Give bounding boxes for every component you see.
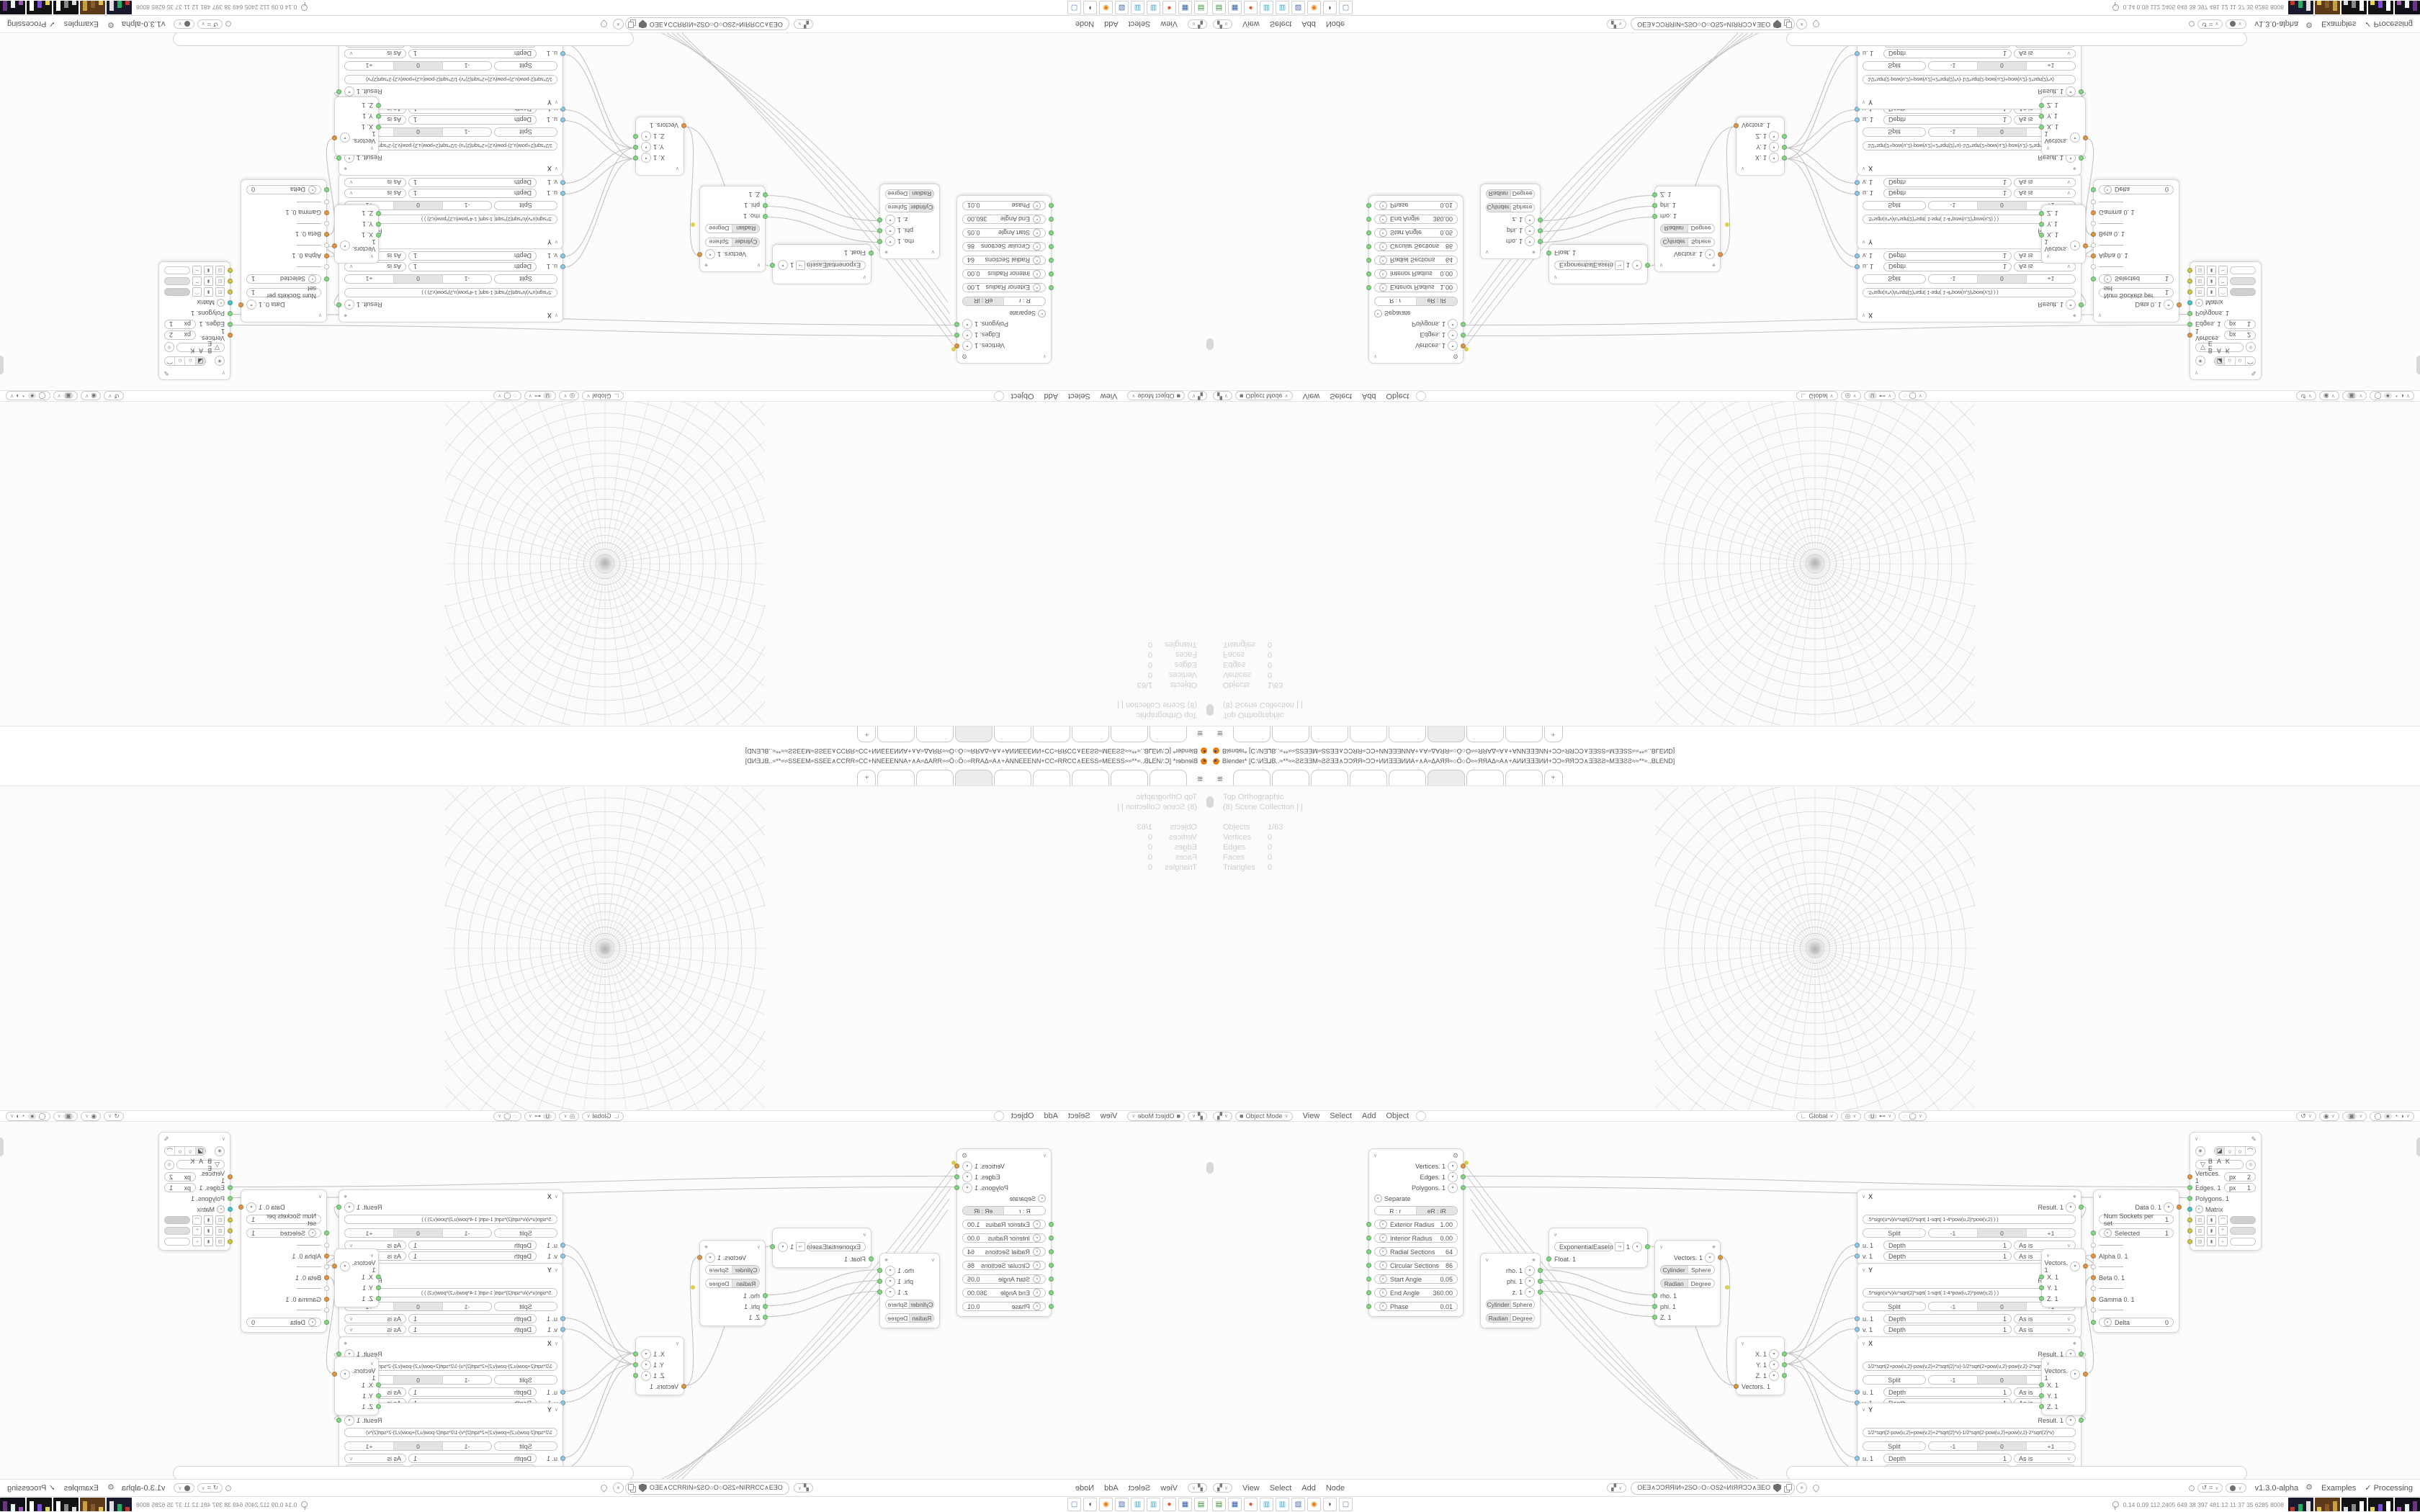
copy-datablock-icon[interactable]	[1784, 1484, 1791, 1492]
viewport-sidebar-toggle[interactable]	[1210, 796, 1214, 808]
socket-empty[interactable]	[2091, 1264, 2096, 1269]
segment-r-r[interactable]: R : r	[1004, 297, 1046, 305]
segment-r-r[interactable]: R : r	[1004, 1207, 1046, 1215]
node-cyl2cart[interactable]: ∨⌖Vectors. 1▾CylinderSphereRadianDegreer…	[1654, 186, 1721, 272]
socket-blue[interactable]	[560, 1390, 565, 1395]
socket-orange[interactable]	[324, 210, 329, 215]
swatch-icon-1[interactable]: ▮	[2207, 276, 2216, 286]
socket-green[interactable]	[1645, 263, 1650, 268]
menu-hamburger-icon[interactable]: ≡	[1197, 729, 1203, 737]
px-field[interactable]: px2	[2224, 330, 2256, 340]
node-editor-menu-select[interactable]: Select	[1270, 20, 1292, 29]
range-0[interactable]: -1	[442, 1229, 491, 1237]
node-editor-menu-select[interactable]: Select	[1270, 1484, 1292, 1493]
segment-radian[interactable]: Radian	[1487, 190, 1511, 198]
copy-datablock-icon[interactable]	[1784, 20, 1791, 28]
node-editor-menu-node[interactable]: Node	[1075, 20, 1094, 29]
socket-yellow[interactable]	[2187, 279, 2192, 284]
node-editor-scrollbar[interactable]	[0, 1138, 4, 1156]
value-field-phase[interactable]: Phase0.01	[962, 201, 1046, 210]
socket-green[interactable]	[877, 228, 882, 233]
overlays-dropdown[interactable]: ◉∨	[2319, 392, 2339, 401]
split-range-toggle[interactable]: -10+1	[1928, 274, 2076, 284]
proportional-editing-toggle[interactable]: ◌◯∨	[493, 392, 521, 401]
taskbar-green-document-app[interactable]: ▤	[1194, 1498, 1208, 1511]
segment-er-ir[interactable]: eR : iR	[963, 1207, 1004, 1215]
status-dot-dropdown[interactable]: ∨	[174, 19, 194, 29]
segment-r-r[interactable]: R : r	[1375, 1207, 1417, 1215]
node-editor-scrollbar[interactable]	[2416, 1138, 2420, 1156]
node-cyl2cart[interactable]: ∨⌖Vectors. 1▾CylinderSphereRadianDegreer…	[1654, 1240, 1721, 1326]
gear-icon[interactable]: ⚙	[107, 21, 115, 27]
preview-eye-button[interactable]: ◉	[2195, 356, 2205, 366]
value-field-exterior-radius[interactable]: Exterior Radius1.00	[1374, 283, 1458, 292]
swatch-icon-1[interactable]: ▮	[204, 276, 213, 286]
value-field-delta[interactable]: Delta0	[246, 185, 321, 194]
status-circle-icon[interactable]	[225, 22, 231, 27]
socket-orange[interactable]	[2177, 302, 2182, 307]
socket-empty[interactable]	[324, 1308, 329, 1313]
socket-collapse-button[interactable]: ▾	[2070, 241, 2080, 251]
proportional-editing-toggle[interactable]: ◌◯∨	[1899, 1112, 1927, 1121]
shading-mode-2[interactable]: ◔	[2394, 1113, 2398, 1120]
editor-type-selector[interactable]: ▞∨	[1188, 392, 1207, 401]
socket-teal[interactable]	[228, 300, 233, 305]
node-comb2[interactable]: ∨Vectors. 1▾X. 1Y. 1Z. 1	[334, 1356, 379, 1416]
socket-green[interactable]	[1782, 134, 1787, 139]
segment-radian[interactable]: Radian	[1661, 225, 1688, 233]
bake-button[interactable]: ▽B A K E	[176, 1160, 225, 1169]
socket-green[interactable]	[1461, 322, 1466, 327]
depth-field[interactable]: Depth1	[1883, 251, 2012, 261]
socket-collapse-button[interactable]: ▾	[246, 300, 256, 310]
gizmo-dropdown[interactable]: ↺∨	[2296, 392, 2316, 401]
socket-collapse-button[interactable]: ▾	[2066, 300, 2076, 310]
socket-orange[interactable]	[332, 1372, 337, 1377]
socket-green[interactable]	[1461, 333, 1466, 338]
socket-green[interactable]	[2187, 322, 2192, 327]
socket-teal[interactable]	[228, 1207, 233, 1212]
socket-green[interactable]	[1538, 217, 1543, 222]
formula-field[interactable]: .5*sign(u*v)/v*sqrt(2)*sqrt( 1-sqrt( 1-4…	[344, 1215, 557, 1224]
active-tool-icon[interactable]	[994, 1111, 1004, 1121]
depth-field[interactable]: Depth1	[408, 251, 537, 261]
segment-radian[interactable]: Radian	[732, 225, 760, 233]
node-editor-menu-add[interactable]: Add	[1301, 1484, 1316, 1493]
unlink-datablock-button[interactable]: ×	[1796, 19, 1807, 30]
color-bar[interactable]	[2230, 277, 2256, 285]
socket-collapse-button[interactable]: ▾	[2066, 1416, 2076, 1426]
socket-collapse-button[interactable]: ▾	[1769, 1371, 1779, 1381]
socket-green[interactable]	[1645, 1244, 1650, 1249]
socket-collapse-button[interactable]: ▾	[641, 153, 651, 163]
workspace-tab-4[interactable]	[1033, 770, 1070, 786]
shading-mode-1[interactable]: ●	[2384, 393, 2392, 400]
split-range-toggle[interactable]: -10+1	[344, 274, 492, 284]
easing-dropdown[interactable]: ExponentialEaseIn∨	[1554, 261, 1613, 270]
segmented-toggle[interactable]: RadianDegree	[885, 1313, 934, 1323]
formula-field[interactable]: 1/2*sqrt(2-pow(u,2)+pow(v,2)+2*sqrt(2)*v…	[1863, 75, 2076, 84]
swatch-icon-1[interactable]: ▮	[2207, 1237, 2216, 1246]
swatch-icon-2[interactable]: ⌳	[2218, 266, 2228, 275]
socket-orange[interactable]	[332, 135, 337, 140]
viewport-menu-view[interactable]: View	[1303, 1112, 1320, 1120]
formula-field[interactable]: 1/2*sqrt(2-pow(u,2)+pow(v,2)+2*sqrt(2)*v…	[344, 1428, 557, 1437]
swatch-icon-1[interactable]: ▮	[204, 266, 213, 275]
segment-cylinder[interactable]: Cylinder	[732, 238, 760, 246]
pin-icon[interactable]	[1811, 1483, 1821, 1493]
range-0[interactable]: -1	[1929, 1376, 1978, 1384]
status-dot-dropdown[interactable]: ∨	[2226, 19, 2246, 29]
node-editor-menu-view[interactable]: View	[1160, 1484, 1178, 1493]
socket-empty[interactable]	[2091, 243, 2096, 248]
segmented-toggle[interactable]: RadianDegree	[705, 224, 760, 233]
node-data[interactable]: ∨Data 0. 1▾Num Sockets per set1Selected1…	[241, 1189, 327, 1333]
segmented-toggle[interactable]: CylinderSphere	[1486, 1300, 1535, 1309]
viewport-menu-object[interactable]: Object	[1011, 392, 1034, 400]
node-editor-menu-node[interactable]: Node	[1326, 20, 1345, 29]
socket-blue[interactable]	[1855, 51, 1860, 56]
socket-blue[interactable]	[1855, 1254, 1860, 1259]
taskbar-cyan-notepad-app[interactable]: ▥	[1260, 1, 1273, 14]
socket-green[interactable]	[1366, 203, 1371, 208]
socket-yellow[interactable]	[2187, 1228, 2192, 1233]
range-1[interactable]: 0	[1978, 128, 2027, 136]
color-bar[interactable]	[164, 1227, 190, 1235]
checkbox[interactable]	[1374, 310, 1382, 318]
socket-collapse-button[interactable]: ▾	[778, 1242, 788, 1252]
segment-sphere[interactable]: Sphere	[1688, 1266, 1715, 1274]
node-ease[interactable]: ∨ExponentialEaseIn∨↝1▾Float. 1	[772, 1228, 871, 1268]
menu-hamburger-icon[interactable]: ≡	[1217, 775, 1223, 783]
socket-collapse-button[interactable]: ▾	[2164, 1202, 2174, 1212]
socket-green[interactable]	[2091, 276, 2096, 282]
depth-field[interactable]: Depth1	[408, 1325, 537, 1334]
swatch-icon-1[interactable]: ▮	[204, 1237, 213, 1246]
socket-green[interactable]	[2079, 1418, 2084, 1423]
range-0[interactable]: -1	[1929, 202, 1978, 210]
segmented-toggle[interactable]: R : reR : iR	[962, 297, 1046, 306]
active-tool-icon[interactable]	[994, 391, 1004, 401]
proportional-editing-toggle[interactable]: ◌◯∨	[1899, 392, 1927, 401]
bake-button[interactable]: ▽B A K E	[2195, 343, 2244, 352]
value-field-end-angle[interactable]: End Angle360.00	[962, 1288, 1046, 1297]
value-field-end-angle[interactable]: End Angle360.00	[962, 215, 1046, 224]
socket-teal[interactable]	[2187, 300, 2192, 305]
socket-collapse-button[interactable]: ▾	[2164, 300, 2174, 310]
socket-green[interactable]	[324, 187, 329, 192]
socket-orange[interactable]	[324, 232, 329, 237]
socket-green[interactable]	[2039, 1274, 2044, 1279]
mode-selector[interactable]: ■Object Mode∨	[1127, 392, 1185, 401]
orientation-selector[interactable]: ∟Global∨	[582, 1112, 624, 1121]
socket-blue[interactable]	[560, 253, 565, 258]
socket-green[interactable]	[228, 322, 233, 327]
shading-mode-1[interactable]: ●	[28, 393, 36, 400]
mode-selector[interactable]: ■Object Mode∨	[1235, 1112, 1293, 1121]
value-field-exterior-radius[interactable]: Exterior Radius1.00	[962, 1220, 1046, 1229]
depth-field[interactable]: Depth1	[1883, 189, 2012, 198]
shading-mode-2[interactable]: ◔	[22, 393, 26, 400]
socket-green[interactable]	[1652, 214, 1657, 219]
segment-sphere[interactable]: Sphere	[706, 238, 732, 246]
segment-degree[interactable]: Degree	[1511, 1314, 1535, 1322]
socket-blue[interactable]	[560, 1243, 565, 1248]
overlays-dropdown[interactable]: ◉∨	[81, 392, 101, 401]
workspace-tab-8[interactable]	[877, 726, 915, 742]
socket-green[interactable]	[1652, 1304, 1657, 1309]
node-comb1[interactable]: ∨Vectors. 1▾X. 1Y. 1Z. 1	[334, 1248, 379, 1308]
value-field-exterior-radius[interactable]: Exterior Radius1.00	[1374, 1220, 1458, 1229]
depth-field[interactable]: Depth1	[1883, 115, 2012, 125]
examples-link[interactable]: Examples	[2321, 20, 2356, 29]
workspace-tab-2[interactable]	[1111, 726, 1148, 742]
preview-eye-button[interactable]: ◉	[2195, 1146, 2205, 1156]
socket-orange[interactable]	[228, 1174, 233, 1179]
workspace-tab-4[interactable]	[1033, 726, 1070, 742]
bake-domain-1[interactable]: ○	[2225, 357, 2235, 365]
gizmo-dropdown[interactable]: ↺∨	[104, 1112, 124, 1121]
socket-green[interactable]	[633, 156, 638, 161]
num-sockets-field[interactable]: Num Sockets per set1	[2099, 288, 2174, 297]
socket-green[interactable]	[2091, 1230, 2096, 1236]
socket-collapse-button[interactable]: ▾	[1448, 341, 1458, 351]
add-workspace-tab-button[interactable]: +	[1544, 726, 1563, 742]
orientation-selector[interactable]: ∟Global∨	[582, 392, 624, 401]
socket-collapse-button[interactable]: ▾	[1448, 1172, 1458, 1182]
socket-green[interactable]	[1782, 156, 1787, 161]
swatch-icon-0[interactable]: ◲	[215, 1237, 225, 1246]
socket-empty[interactable]	[324, 264, 329, 269]
node-tree-selector[interactable]: ▞∨	[1607, 19, 1626, 29]
socket-green[interactable]	[1049, 1222, 1054, 1227]
value-field-circular-sections[interactable]: Circular Sections86	[1374, 1261, 1458, 1270]
editor-type-selector[interactable]: ▞∨	[1188, 1112, 1207, 1121]
viewport-3d[interactable]: Top Orthographic (8) Scene Collection | …	[1210, 401, 2420, 726]
examples-link[interactable]: Examples	[2321, 1484, 2356, 1493]
socket-green[interactable]	[954, 322, 959, 327]
socket-yellow[interactable]	[228, 289, 233, 294]
socket-green[interactable]	[376, 211, 381, 216]
bake-ring-button[interactable]: ◎	[2246, 343, 2256, 353]
value-field-interior-radius[interactable]: Interior Radius0.00	[1374, 269, 1458, 279]
node-editor-menu-view[interactable]: View	[1242, 20, 1260, 29]
px-field[interactable]: px1	[2224, 320, 2256, 329]
snap-toggle[interactable]: ∪⊷∨	[524, 1112, 557, 1121]
socket-green[interactable]	[2187, 311, 2192, 316]
socket-green[interactable]	[228, 311, 233, 316]
socket-blue[interactable]	[560, 51, 565, 56]
bake-domain-0[interactable]: ◪	[195, 1147, 205, 1155]
bake-domain-3[interactable]: ⌒	[2246, 1147, 2255, 1155]
value-field-start-angle[interactable]: Start Angle0.05	[1374, 228, 1458, 238]
socket-orange[interactable]	[697, 252, 702, 257]
datablock-name-field[interactable]: OEƎ∧ƆƆЯЯIИ≈2SO○O○OS2≈ИIЯЯƆƆ∧ƎEO	[1631, 1482, 1795, 1495]
segment-cylinder[interactable]: Cylinder	[910, 1300, 934, 1308]
examples-link[interactable]: Examples	[64, 20, 99, 29]
color-bar[interactable]	[164, 266, 190, 274]
socket-collapse-button[interactable]: ▾	[1769, 143, 1779, 153]
value-field-selected[interactable]: Selected1	[246, 274, 321, 284]
workspace-tab-3[interactable]	[1072, 726, 1109, 742]
workspace-tab-6[interactable]	[1428, 726, 1465, 742]
workspace-tab-1[interactable]	[1233, 770, 1270, 786]
socket-empty[interactable]	[324, 243, 329, 248]
socket-green[interactable]	[1049, 217, 1054, 222]
swatch-icon-1[interactable]: ▮	[2207, 1226, 2216, 1236]
socket-green[interactable]	[336, 89, 341, 94]
depth-field[interactable]: Depth1	[408, 1314, 537, 1323]
add-workspace-tab-button[interactable]: +	[1544, 770, 1563, 786]
range-0[interactable]: -1	[1929, 1302, 1978, 1310]
shading-mode-3[interactable]: ◑	[2400, 393, 2403, 400]
socket-empty[interactable]	[2091, 1308, 2096, 1313]
status-circle-icon[interactable]	[2189, 1485, 2195, 1491]
swatch-icon-0[interactable]: ◰	[215, 287, 225, 297]
socket-collapse-button[interactable]: ▾	[2066, 87, 2076, 97]
depth-field[interactable]: Depth1	[1883, 178, 2012, 187]
mode-dropdown[interactable]: As is∨	[2014, 178, 2076, 187]
taskbar-blue-display-app[interactable]: ▢	[1067, 1498, 1081, 1511]
socket-green[interactable]	[869, 1256, 874, 1261]
formula-field[interactable]: 1/2*sqrt(2-pow(u,2)+pow(v,2)+2*sqrt(2)*v…	[344, 75, 557, 84]
socket-collapse-button[interactable]: ▾	[1632, 261, 1642, 271]
socket-collapse-button[interactable]: ▾	[641, 1360, 651, 1370]
socket-green[interactable]	[1782, 1351, 1787, 1356]
viewport-menu-add[interactable]: Add	[1044, 1112, 1059, 1120]
split-button[interactable]: Split	[1863, 201, 1926, 210]
socket-green[interactable]	[1366, 230, 1371, 235]
segmented-toggle[interactable]: RadianDegree	[1486, 1313, 1535, 1323]
range-1[interactable]: 0	[1978, 275, 2027, 283]
bake-button[interactable]: ▽B A K E	[2195, 1160, 2244, 1169]
viewport-3d[interactable]: Top Orthographic (8) Scene Collection | …	[0, 401, 1210, 726]
socket-green[interactable]	[376, 1296, 381, 1301]
bake-domain-3[interactable]: ⌒	[2246, 357, 2255, 365]
socket-collapse-button[interactable]: ▾	[1769, 153, 1779, 163]
socket-green[interactable]	[2091, 1320, 2096, 1325]
bake-domain-2[interactable]: ○	[2236, 1147, 2246, 1155]
viewport-menu-select[interactable]: Select	[1068, 392, 1090, 400]
easing-dropdown[interactable]: ExponentialEaseIn∨	[807, 1242, 866, 1251]
node-comb1[interactable]: ∨Vectors. 1▾X. 1Y. 1Z. 1	[2041, 1248, 2086, 1308]
split-button[interactable]: Split	[494, 127, 557, 137]
value-field-circular-sections[interactable]: Circular Sections86	[962, 242, 1046, 251]
mode-dropdown[interactable]: As is∨	[2014, 1325, 2076, 1334]
range-1[interactable]: 0	[1978, 1442, 2027, 1450]
value-field-start-angle[interactable]: Start Angle0.05	[962, 1274, 1046, 1284]
socket-orange[interactable]	[2091, 1297, 2096, 1302]
socket-collapse-button[interactable]: ▾	[2070, 133, 2080, 143]
socket-green[interactable]	[2039, 222, 2044, 227]
socket-green[interactable]	[1049, 203, 1054, 208]
pin-icon[interactable]	[1811, 19, 1821, 29]
socket-empty[interactable]	[324, 199, 329, 204]
depth-field[interactable]: Depth1	[1883, 1241, 2012, 1250]
segmented-toggle[interactable]: CylinderSphere	[1486, 203, 1535, 212]
bake-domain-2[interactable]: ○	[2236, 357, 2246, 365]
socket-orange[interactable]	[1718, 1255, 1723, 1260]
socket-green[interactable]	[2039, 211, 2044, 216]
bake-ring-button[interactable]: ◎	[164, 343, 174, 353]
socket-orange[interactable]	[954, 343, 959, 348]
node-sepvec[interactable]: ∨X. 1▾Y. 1▾Z. 1▾Vectors. 1	[1736, 117, 1785, 176]
socket-green[interactable]	[1366, 1277, 1371, 1282]
node-editor-sidebar-toggle[interactable]	[1210, 338, 1214, 350]
segment-degree[interactable]: Degree	[886, 1314, 910, 1322]
bake-domain-2[interactable]: ○	[174, 1147, 184, 1155]
shading-mode-0[interactable]: ◯	[38, 393, 45, 400]
segment-sphere[interactable]: Sphere	[1511, 204, 1535, 212]
segment-degree[interactable]: Degree	[706, 225, 732, 233]
range-1[interactable]: 0	[393, 62, 442, 70]
socket-collapse-button[interactable]: ▾	[1525, 1266, 1535, 1276]
split-button[interactable]: Split	[494, 1441, 557, 1451]
socket-teal[interactable]	[2187, 1207, 2192, 1212]
swatch-icon-1[interactable]: ▮	[204, 1226, 213, 1236]
socket-orange[interactable]	[2091, 210, 2096, 215]
px-field[interactable]: px2	[164, 330, 196, 340]
socket-collapse-button[interactable]: ▾	[1769, 1360, 1779, 1370]
socket-green[interactable]	[1652, 192, 1657, 197]
range-0[interactable]: -1	[442, 62, 491, 70]
taskbar-blender-app[interactable]: ◉	[1099, 1498, 1113, 1511]
socket-empty[interactable]	[2091, 1286, 2096, 1291]
value-field-circular-sections[interactable]: Circular Sections86	[962, 1261, 1046, 1270]
asset-shelf-handle[interactable]	[173, 32, 634, 46]
socket-blue[interactable]	[560, 1316, 565, 1321]
socket-orange[interactable]	[2187, 1174, 2192, 1179]
socket-yellow[interactable]	[2187, 1218, 2192, 1223]
socket-green[interactable]	[1049, 1263, 1054, 1268]
swatch-icon-1[interactable]: ▮	[2207, 287, 2216, 297]
range-1[interactable]: 0	[1978, 202, 2027, 210]
value-field-delta[interactable]: Delta0	[2099, 185, 2174, 194]
socket-green[interactable]	[1049, 230, 1054, 235]
mode-dropdown[interactable]: As is∨	[2014, 1454, 2076, 1463]
node-bake[interactable]: ∨✎◉◪○○⌒▽B A K E◎Vertices. 1px2Edges. 1px…	[2190, 1132, 2262, 1251]
range-0[interactable]: -1	[442, 202, 491, 210]
viewport-menu-add[interactable]: Add	[1044, 392, 1059, 400]
xray-toggle[interactable]: ▣∨	[53, 392, 79, 401]
socket-blue[interactable]	[1855, 1456, 1860, 1461]
preview-eye-button[interactable]: ◉	[215, 356, 225, 366]
socket-blue[interactable]	[560, 1254, 565, 1259]
workspace-tab-7[interactable]	[916, 726, 954, 742]
socket-green[interactable]	[2091, 187, 2096, 192]
socket-green[interactable]	[376, 114, 381, 119]
checkbox[interactable]	[1038, 1194, 1046, 1202]
node-ease[interactable]: ∨ExponentialEaseIn∨↝1▾Float. 1	[772, 244, 871, 284]
socket-orange[interactable]	[2187, 333, 2192, 338]
shading-mode-segment[interactable]: ◯●◔◑∨	[2370, 392, 2414, 401]
node-ease[interactable]: ∨ExponentialEaseIn∨↝1▾Float. 1	[1549, 1228, 1648, 1268]
socket-empty[interactable]	[324, 1286, 329, 1291]
segmented-toggle[interactable]: CylinderSphere	[705, 1265, 760, 1274]
add-workspace-tab-button[interactable]: +	[857, 726, 876, 742]
socket-collapse-button[interactable]: ▾	[1525, 1277, 1535, 1287]
workspace-tab-8[interactable]	[1505, 770, 1543, 786]
socket-collapse-button[interactable]: ▾	[1705, 250, 1715, 260]
socket-green[interactable]	[2039, 1404, 2044, 1409]
socket-green[interactable]	[954, 1174, 959, 1179]
taskbar-blue-display-app[interactable]: ▢	[1339, 1498, 1353, 1511]
segmented-toggle[interactable]: CylinderSphere	[885, 203, 934, 212]
socket-orange[interactable]	[697, 1255, 702, 1260]
viewport-3d[interactable]: Top Orthographic (8) Scene Collection | …	[0, 786, 1210, 1111]
socket-green[interactable]	[2079, 1351, 2084, 1356]
socket-empty[interactable]	[2091, 1243, 2096, 1248]
